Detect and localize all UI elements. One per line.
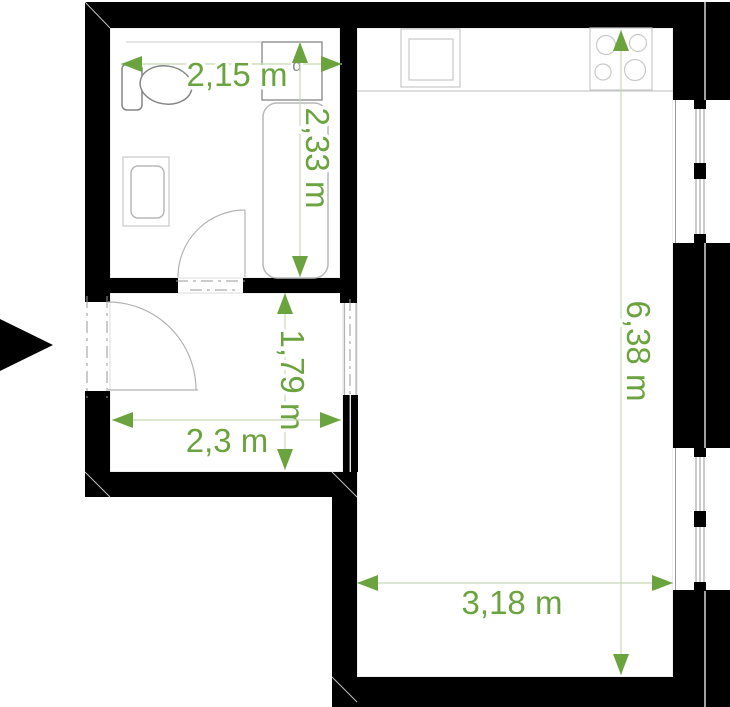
dimension-label: 6,38 m [620,301,657,402]
dimension-label: 2,33 m [299,108,336,209]
sink-outer [401,29,460,87]
hall-room-passage [345,299,357,399]
window-frame-mark [694,448,706,457]
window-frame-mark [694,519,706,527]
toilet-tank [122,64,142,110]
burner [625,60,646,81]
kitchen-sink-icon [401,29,460,87]
sink-basin [409,39,453,80]
dimension-label: 1,79 m [274,330,311,431]
window-bottom [673,448,730,591]
door-swing-arc [178,210,245,277]
arrow-up-icon [277,293,293,314]
wall-left-upper [85,2,110,302]
room-outlines [110,28,673,677]
window-frame-mark [694,171,706,179]
door-swing-arc [108,302,196,390]
wall-bath-hall-left [85,278,178,293]
dimension-label: 2,3 m [186,422,269,459]
entrance-door [87,296,198,398]
dimension-hallway-depth: 1,79 m [274,293,311,470]
dimension-room-depth: 6,38 m [613,30,657,675]
arrow-right-icon [320,412,341,428]
washbasin-icon [123,157,169,226]
wall-right-middle [673,243,730,448]
wall-hall-bottom [85,472,345,497]
arrow-left-icon [112,412,133,428]
floor-plan: 2,15 m d 2,33 m 1,79 m 2,3 m 6,38 m 3,18… [0,0,730,707]
window-frame-mark [694,163,706,171]
dimension-label: 3,18 m [462,584,563,621]
window-frame-mark [694,100,706,109]
wall-room-left [332,472,357,677]
arrow-right-icon [321,56,342,72]
window-top [673,100,730,243]
window-frame-mark [694,582,706,591]
wall-right-upper [673,2,730,100]
washbasin-inner [131,166,164,218]
wall-top [85,2,730,28]
wall-bath-hall-right [243,278,356,293]
entrance-arrow-icon [0,319,53,371]
arrow-right-icon [652,575,673,591]
toilet-icon [122,63,194,110]
arrow-up-icon [613,30,629,51]
dimension-label: 2,15 m [187,56,288,93]
wall-left-lower [85,391,110,475]
burner [630,35,647,52]
floor-plan-svg: 2,15 m d 2,33 m 1,79 m 2,3 m 6,38 m 3,18… [0,0,730,707]
burner [597,36,616,55]
dimension-room-width: 3,18 m [357,575,673,621]
arrow-down-icon [277,449,293,470]
arrow-down-icon [613,654,629,675]
arrow-left-icon [357,575,378,591]
burner [595,64,611,80]
window-frame-mark [694,511,706,519]
window-frame-mark [694,234,706,243]
wall-bath-room [340,2,357,303]
wall-bottom [332,677,730,707]
